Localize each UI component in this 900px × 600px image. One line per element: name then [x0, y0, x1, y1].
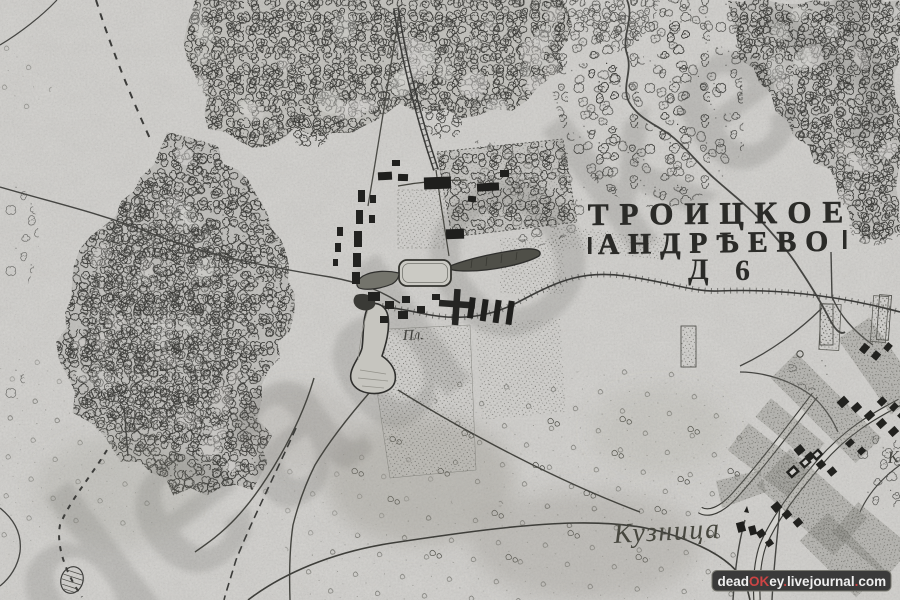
- svg-text:deadOKey.livejournal.com: deadOKey.livejournal.com: [718, 574, 887, 589]
- svg-text:Кузница: Кузница: [612, 513, 722, 550]
- svg-text:Пл.: Пл.: [402, 327, 425, 344]
- svg-text:6: 6: [735, 254, 750, 287]
- svg-text:АНДРѢЕВО: АНДРѢЕВО: [598, 226, 838, 261]
- svg-text:Кг: Кг: [886, 447, 900, 467]
- svg-text:Д: Д: [688, 253, 709, 286]
